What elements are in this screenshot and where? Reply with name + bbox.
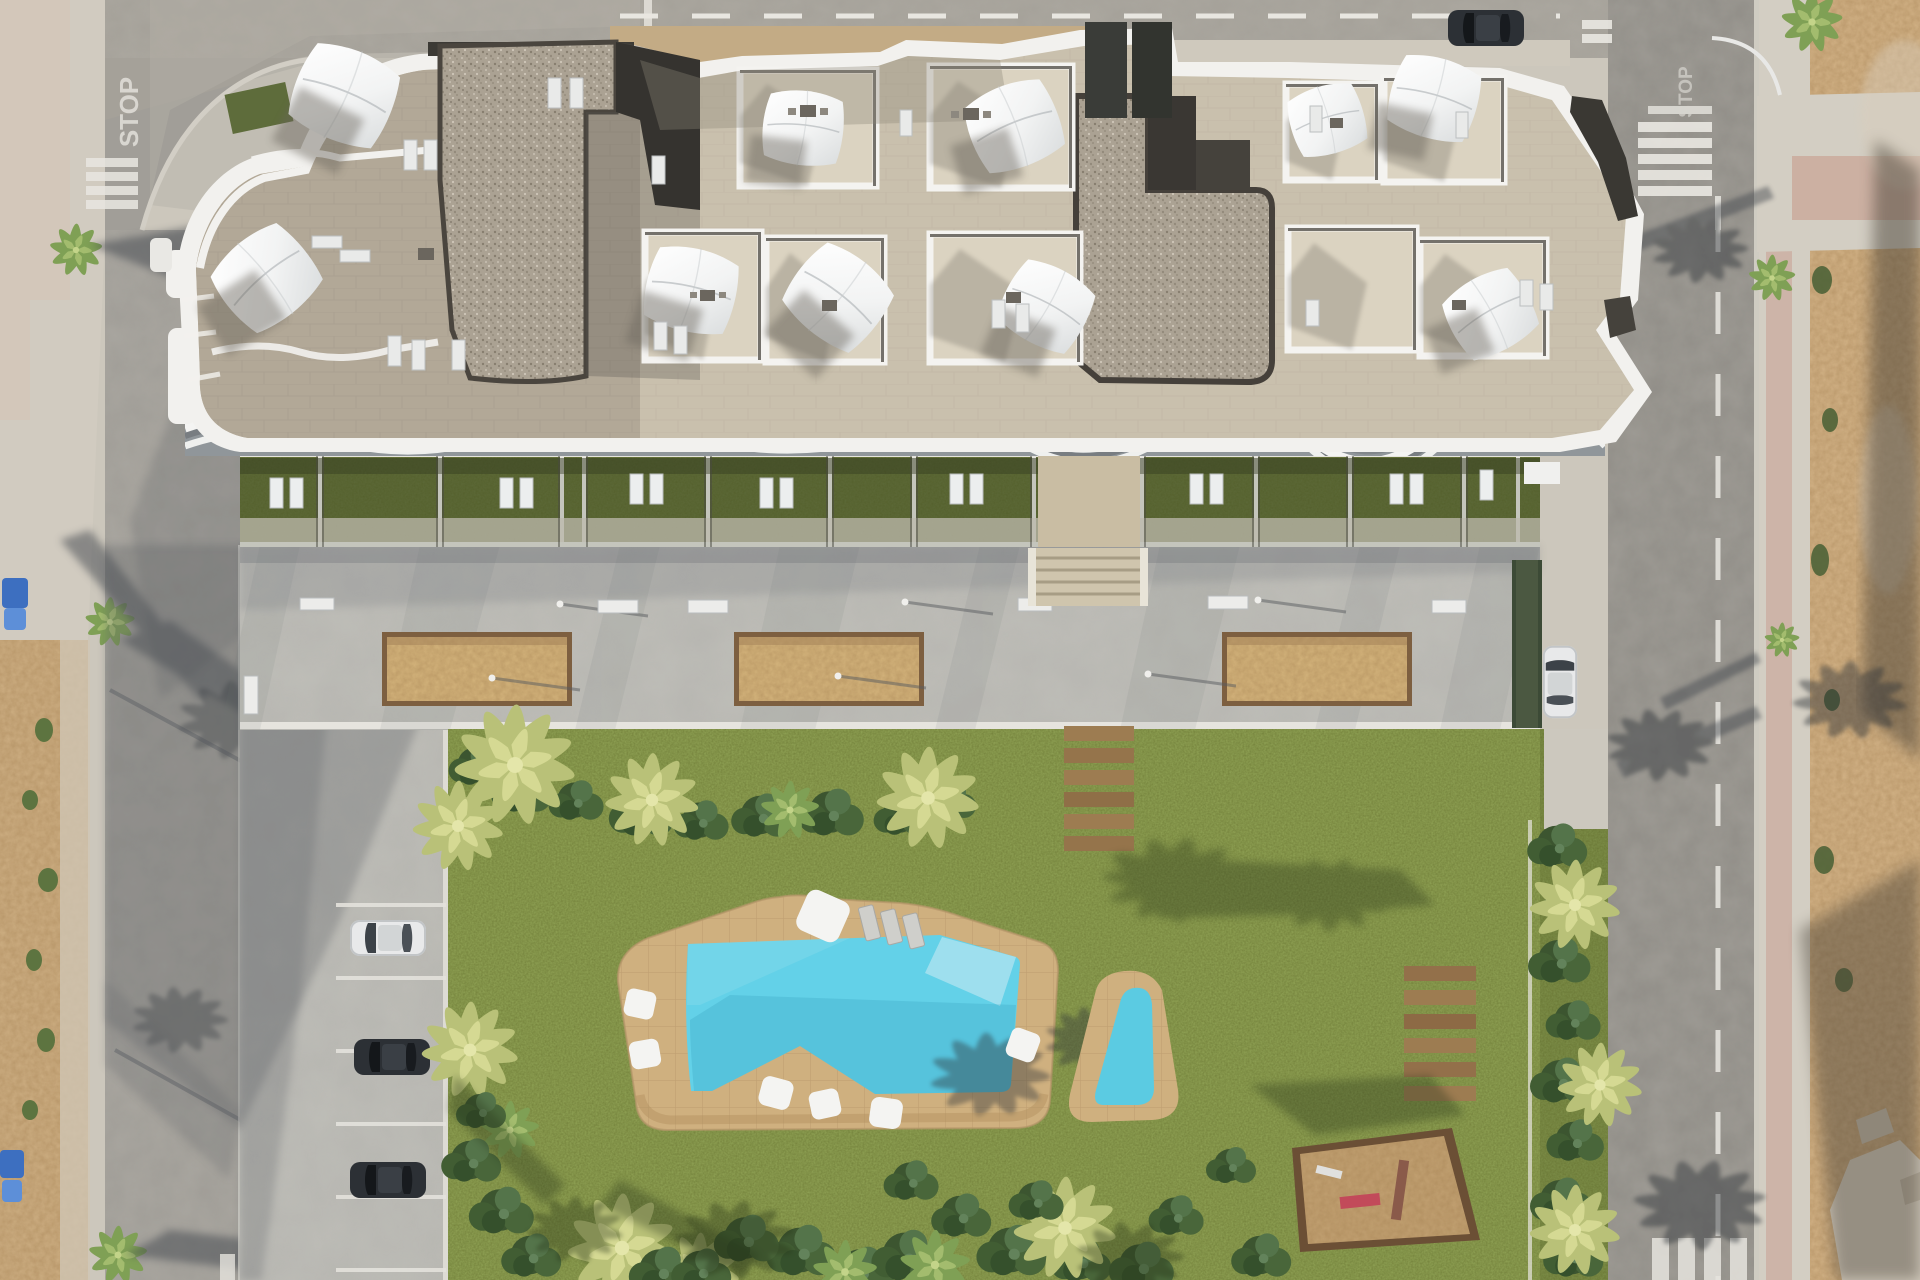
svg-text:STOP: STOP bbox=[114, 77, 144, 147]
svg-text:STOP: STOP bbox=[1676, 66, 1697, 118]
